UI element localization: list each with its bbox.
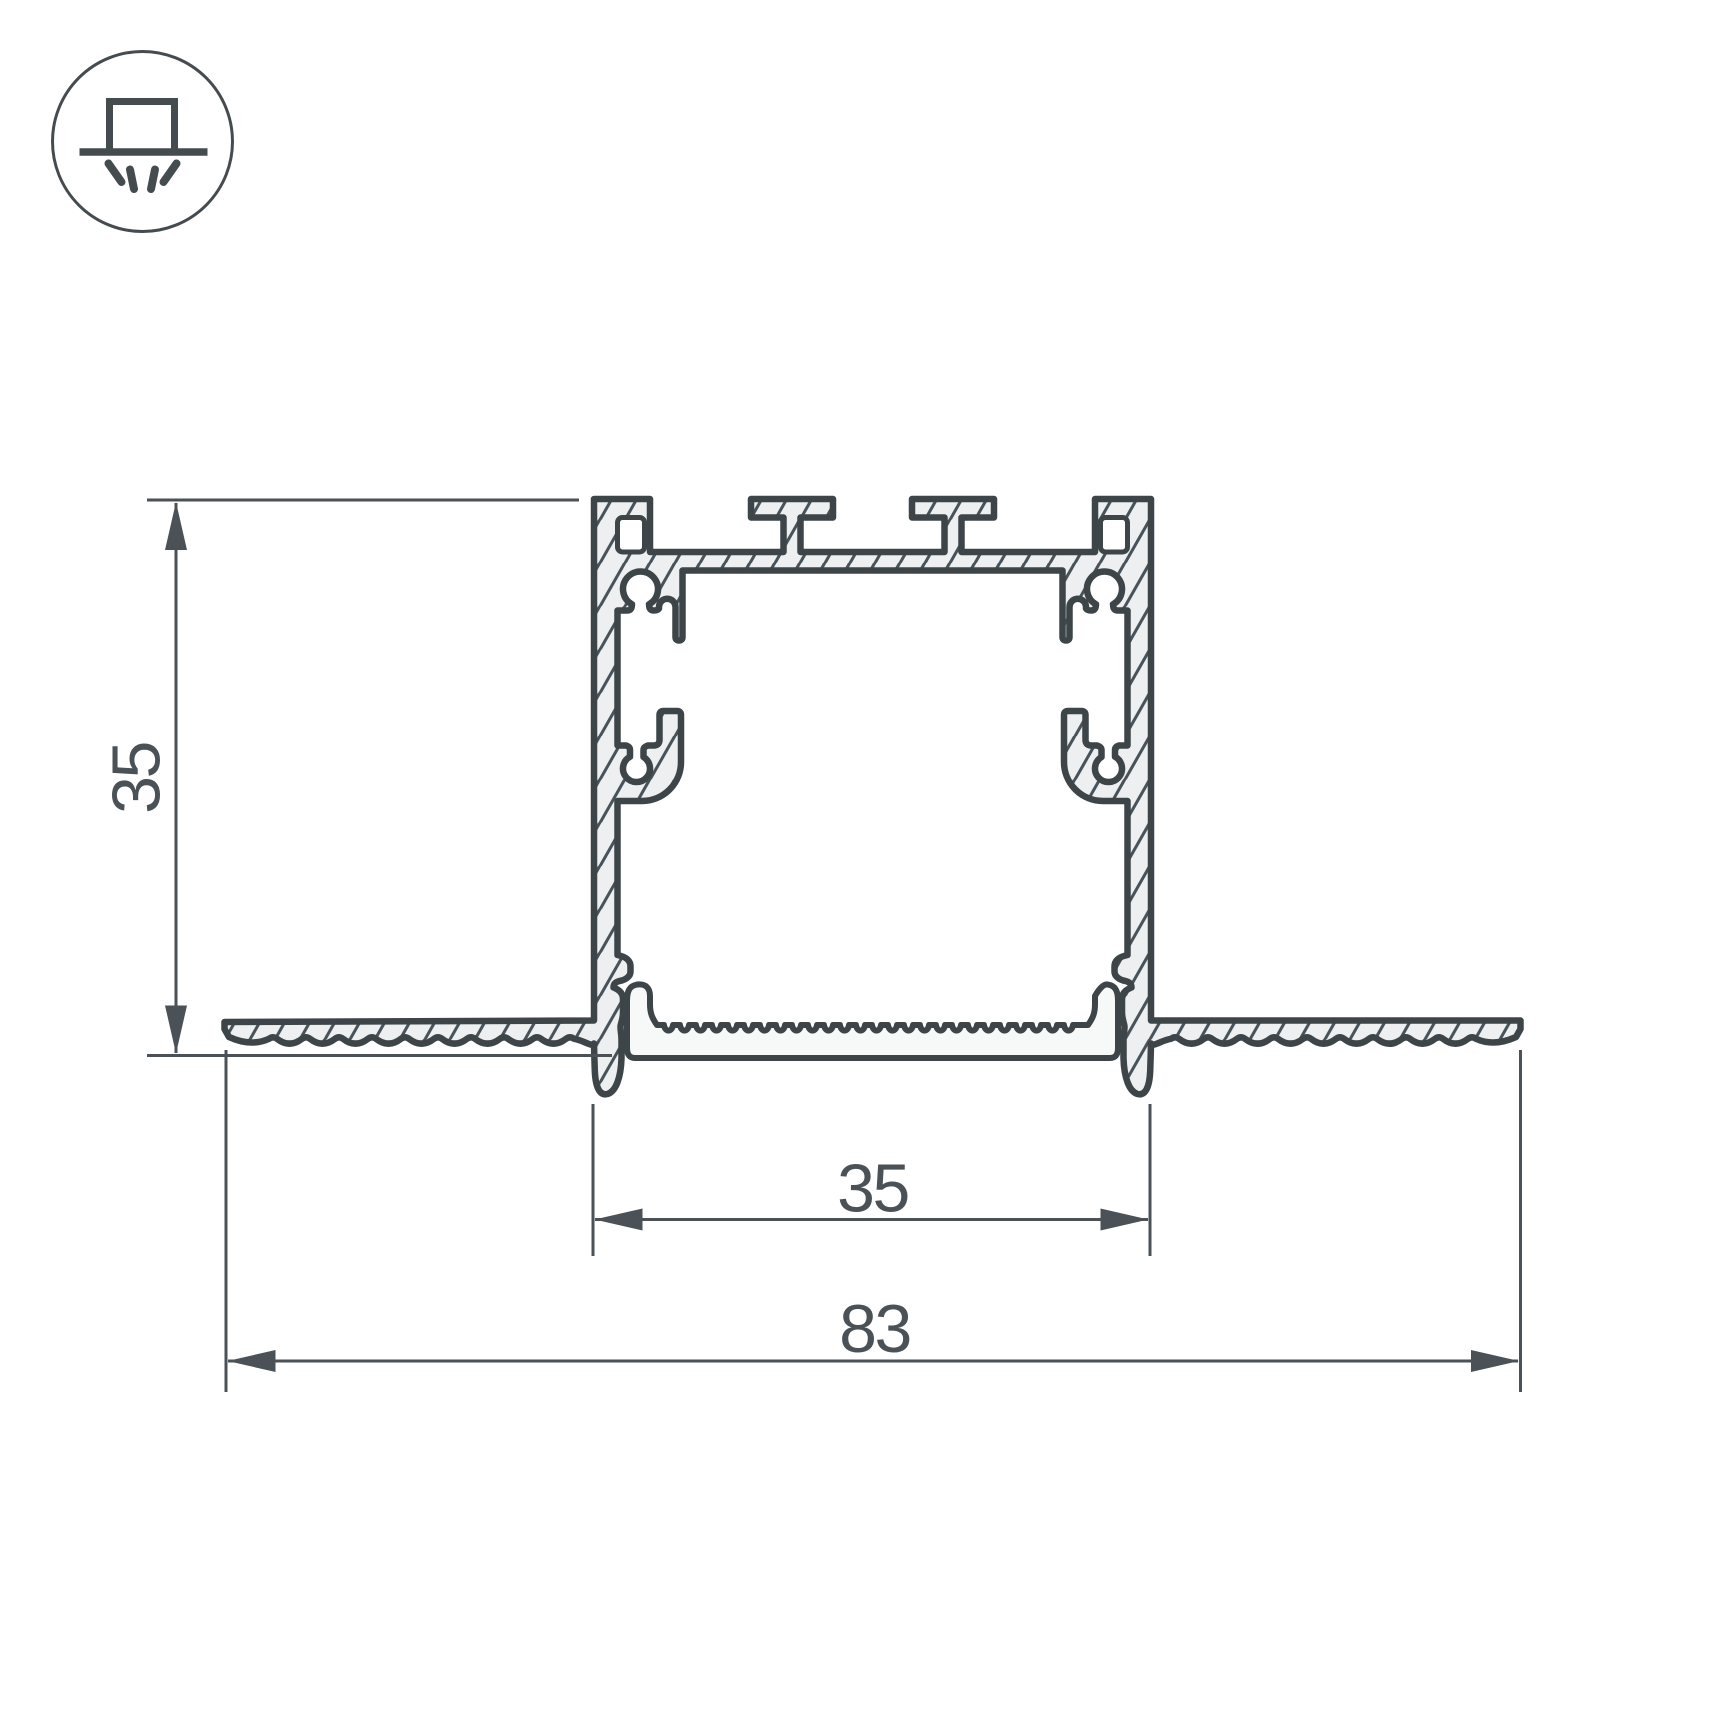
svg-text:83: 83 bbox=[839, 1291, 910, 1367]
svg-text:35: 35 bbox=[837, 1151, 908, 1227]
svg-text:35: 35 bbox=[99, 743, 175, 814]
